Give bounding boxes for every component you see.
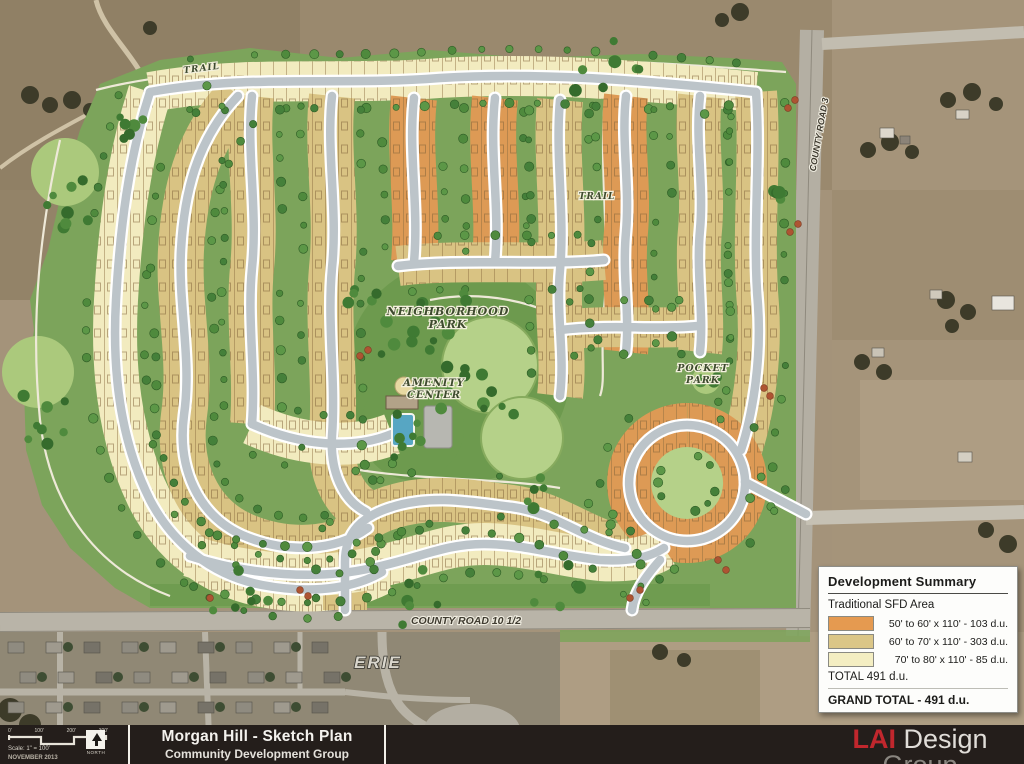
development-summary-legend: Development Summary Traditional SFD Area…	[818, 566, 1018, 713]
legend-rule	[828, 593, 1008, 594]
plan-date: NOVEMBER 2013	[8, 755, 58, 761]
amenity-center-label: AMENITY	[402, 378, 465, 389]
sheet-title-block: Morgan Hill - Sketch Plan Community Deve…	[132, 725, 382, 764]
scale-tick: 0'	[8, 728, 12, 734]
legend-rule-2	[828, 688, 1008, 689]
scale-tick: 100'	[35, 728, 44, 734]
erie-label: ERIE	[354, 653, 402, 672]
logo-group: Group	[882, 750, 957, 764]
legend-row-yellow: 70' to 80' x 110' - 85 d.u.	[828, 652, 1008, 667]
divider	[384, 725, 386, 764]
pocket-park-label: POCKET	[676, 363, 729, 374]
neighborhood-park-label-2: PARK	[428, 318, 468, 331]
title-bar: 0' 100' 200' 300' Scale: 1" = 100' NOVEM…	[0, 725, 1024, 764]
lai-design-group-logo: LAI Design Group CORPORATE OFFICE - 8201…	[816, 725, 1024, 764]
legend-title: Development Summary	[828, 574, 1008, 589]
divider	[128, 725, 130, 764]
north-arrow-stem	[95, 739, 98, 746]
county-road-10-label: COUNTY ROAD 10 1/2	[411, 615, 521, 627]
legend-row-tan: 60' to 70' x 110' - 303 d.u.	[828, 634, 1008, 649]
legend-row-label: 50' to 60' x 110' - 103 d.u.	[874, 618, 1008, 630]
amenity-center-label-2: CENTER	[407, 390, 461, 401]
swatch-60-70	[828, 634, 874, 649]
north-label: NORTH	[82, 750, 110, 755]
legend-row-label: 70' to 80' x 110' - 85 d.u.	[874, 654, 1008, 666]
pocket-park-label-2: PARK	[685, 375, 720, 386]
scale-block: 0' 100' 200' 300' Scale: 1" = 100' NOVEM…	[6, 727, 126, 762]
north-arrow-icon	[86, 730, 105, 749]
swatch-50-60	[828, 616, 874, 631]
neighborhood-park-label: NEIGHBORHOOD	[386, 305, 510, 318]
scale-text: Scale: 1" = 100'	[8, 746, 50, 752]
legend-total: TOTAL 491 d.u.	[828, 671, 1008, 683]
sketch-plan-sheet: TRAIL TRAIL NEIGHBORHOOD PARK AMENITY CE…	[0, 0, 1024, 764]
sheet-title: Morgan Hill - Sketch Plan	[132, 728, 382, 746]
legend-row-orange: 50' to 60' x 110' - 103 d.u.	[828, 616, 1008, 631]
legend-subtitle: Traditional SFD Area	[828, 599, 1008, 611]
trail-label-mid: TRAIL	[579, 192, 616, 202]
logo-wordmark: LAI Design Group	[816, 726, 1024, 764]
swatch-70-80	[828, 652, 874, 667]
sheet-subtitle: Community Development Group	[132, 747, 382, 761]
scale-tick: 200'	[67, 728, 76, 734]
legend-grand-total: GRAND TOTAL - 491 d.u.	[828, 693, 1008, 707]
legend-row-label: 60' to 70' x 110' - 303 d.u.	[874, 636, 1008, 648]
